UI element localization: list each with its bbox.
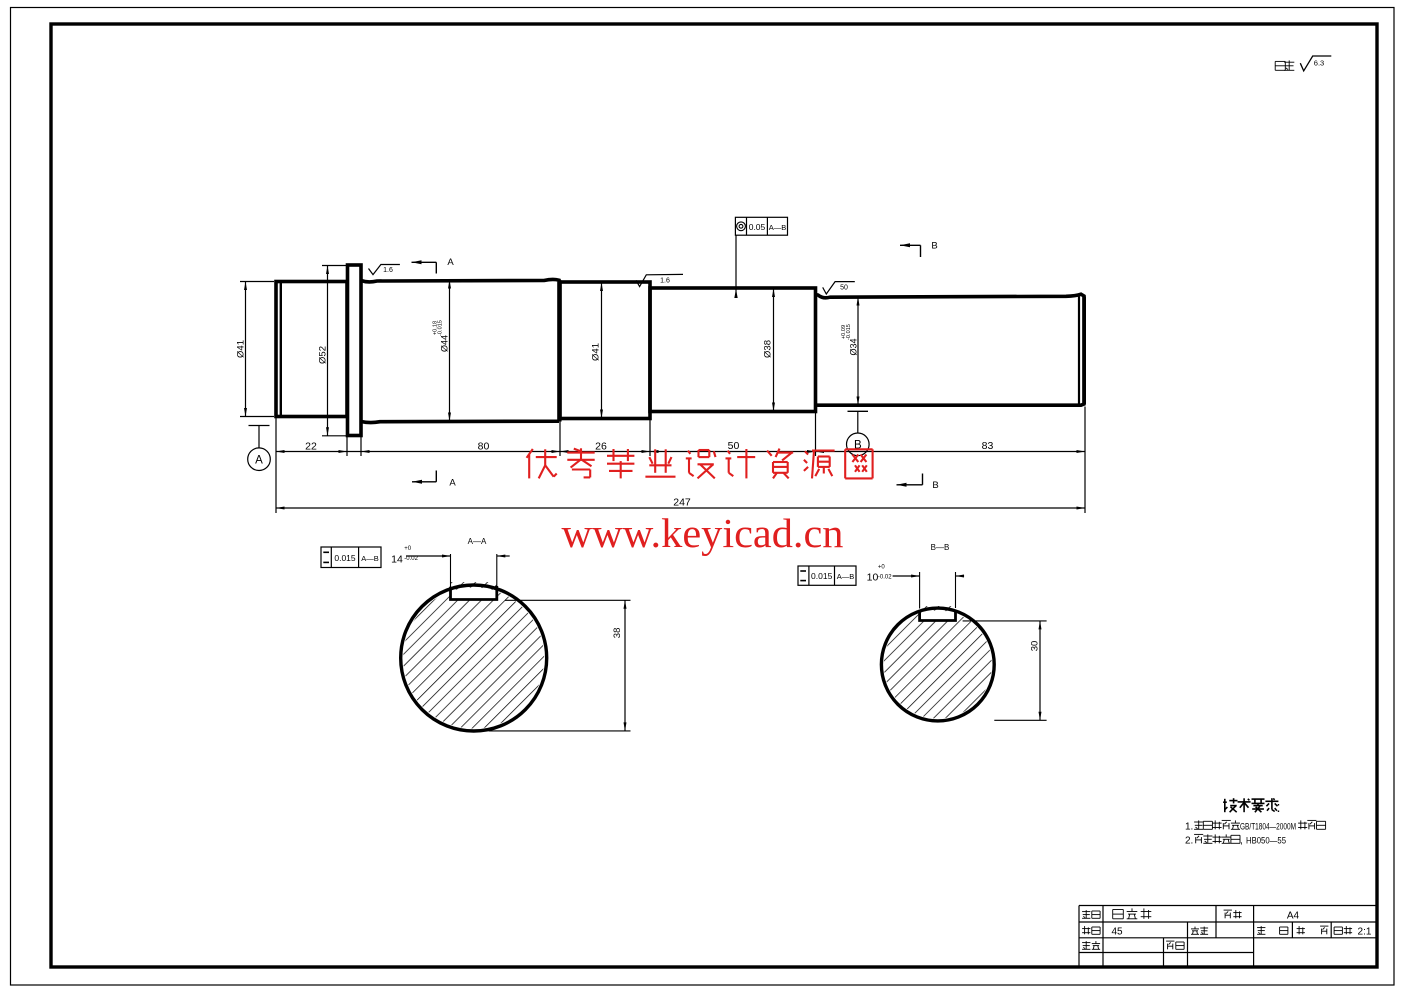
svg-text:0.015: 0.015 [334,553,356,563]
svg-text:A4: A4 [1287,911,1300,922]
svg-text:HB050—55: HB050—55 [1246,836,1286,847]
svg-text:247: 247 [673,497,691,509]
svg-text:GB/T1804—2000M: GB/T1804—2000M [1240,822,1296,833]
svg-text:2.: 2. [1185,836,1193,847]
svg-text:A—B: A—B [837,572,855,581]
svg-text:www.keyicad.cn: www.keyicad.cn [562,510,844,556]
svg-text:-0.02: -0.02 [404,556,418,562]
svg-text:0.015: 0.015 [811,571,833,581]
svg-text:50: 50 [728,440,740,452]
svg-text:1.: 1. [1185,822,1193,833]
svg-text:+0: +0 [404,546,412,552]
svg-text:Ø41: Ø41 [591,343,602,361]
svg-text:B: B [932,480,938,491]
svg-text:50: 50 [840,284,848,291]
svg-text:30: 30 [1030,641,1041,652]
svg-text:26: 26 [595,440,607,452]
svg-text:22: 22 [305,440,317,452]
svg-text:A: A [449,478,456,489]
svg-text:Ø52: Ø52 [318,346,329,364]
svg-text:,: , [1240,836,1243,847]
svg-text:Ø44: Ø44 [440,335,450,352]
svg-text:+0: +0 [878,565,886,571]
svg-text:1.6: 1.6 [660,278,670,285]
svg-text:1.6: 1.6 [383,267,393,274]
svg-text:A: A [447,257,454,268]
svg-text:B—B: B—B [931,543,950,552]
svg-text:A—A: A—A [468,537,487,546]
svg-text:-0.015: -0.015 [438,320,444,336]
svg-text:0.05: 0.05 [749,222,766,232]
svg-text:14: 14 [391,554,403,566]
svg-text:A—B: A—B [361,554,379,563]
svg-text:Ø41: Ø41 [236,340,247,358]
svg-text:2:1: 2:1 [1358,927,1372,938]
svg-text:80: 80 [478,440,490,452]
svg-text:-0.02: -0.02 [878,575,892,581]
svg-text:-0.015: -0.015 [846,324,852,340]
svg-text:6.3: 6.3 [1314,59,1324,68]
svg-text:38: 38 [612,628,623,639]
svg-text::: : [1276,799,1280,816]
svg-text:B: B [931,241,937,252]
svg-text:A—B: A—B [769,223,787,232]
svg-text:10: 10 [867,572,879,584]
svg-text:Ø38: Ø38 [763,340,774,358]
svg-text:83: 83 [982,440,994,452]
svg-text:A: A [255,454,263,466]
svg-text:45: 45 [1111,927,1123,938]
svg-text:Ø34: Ø34 [849,338,859,355]
